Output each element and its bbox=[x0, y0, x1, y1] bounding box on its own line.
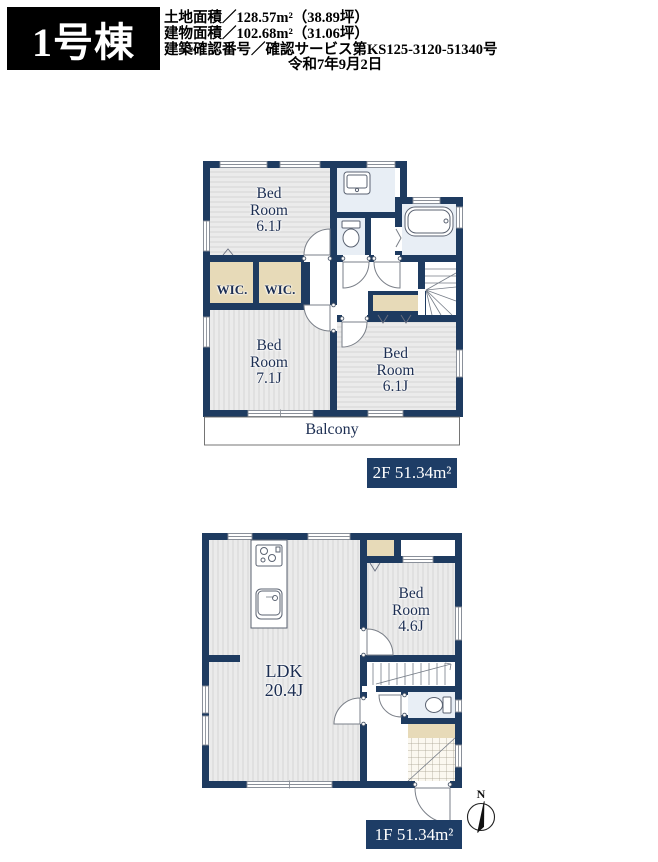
confirmation-date: 令和7年9月2日 bbox=[164, 58, 498, 74]
stairs-1f bbox=[373, 663, 451, 685]
bedroom-1f-label: Bed Room 4.6J bbox=[367, 586, 455, 636]
ldk-label: LDK 20.4J bbox=[209, 662, 359, 701]
balcony-label: Balcony bbox=[204, 421, 460, 438]
kitchen-island bbox=[251, 540, 287, 628]
washbasin-icon bbox=[344, 172, 370, 194]
wic-left-label: WIC. bbox=[210, 283, 254, 297]
toilet-1f-icon bbox=[426, 697, 452, 713]
closet-1f-floor bbox=[367, 540, 394, 556]
compass-icon: N bbox=[458, 785, 504, 841]
bedroom-se-label: Bed Room 6.1J bbox=[337, 346, 454, 396]
stairs-2f bbox=[425, 269, 456, 315]
land-area: 土地面積／128.57m²（38.89坪） bbox=[164, 11, 498, 27]
unit-name: 1号棟 bbox=[32, 10, 135, 68]
area-badge-1f: 1F 51.34m² bbox=[366, 820, 462, 849]
entry-step-floor bbox=[408, 724, 455, 738]
bathtub-icon bbox=[405, 207, 453, 236]
closet-se-floor bbox=[373, 295, 421, 311]
header-info: 土地面積／128.57m²（38.89坪） 建物面積／102.68m²（31.0… bbox=[164, 11, 498, 74]
bedroom-sw-label: Bed Room 7.1J bbox=[210, 338, 328, 388]
entrance-door bbox=[415, 788, 450, 823]
compass-n-label: N bbox=[477, 787, 486, 801]
toilet-2f-icon bbox=[342, 221, 360, 247]
area-badge-2f: 2F 51.34m² bbox=[367, 458, 457, 488]
building-area: 建物面積／102.68m²（31.06坪） bbox=[164, 27, 498, 43]
stove-icon bbox=[256, 545, 282, 566]
wic-right-label: WIC. bbox=[258, 283, 302, 297]
bedroom-nw-label: Bed Room 6.1J bbox=[210, 186, 328, 236]
sink-icon bbox=[256, 589, 282, 619]
floorplan-sheet: 1号棟 土地面積／128.57m²（38.89坪） 建物面積／102.68m²（… bbox=[0, 0, 658, 862]
unit-name-box: 1号棟 bbox=[7, 7, 160, 70]
